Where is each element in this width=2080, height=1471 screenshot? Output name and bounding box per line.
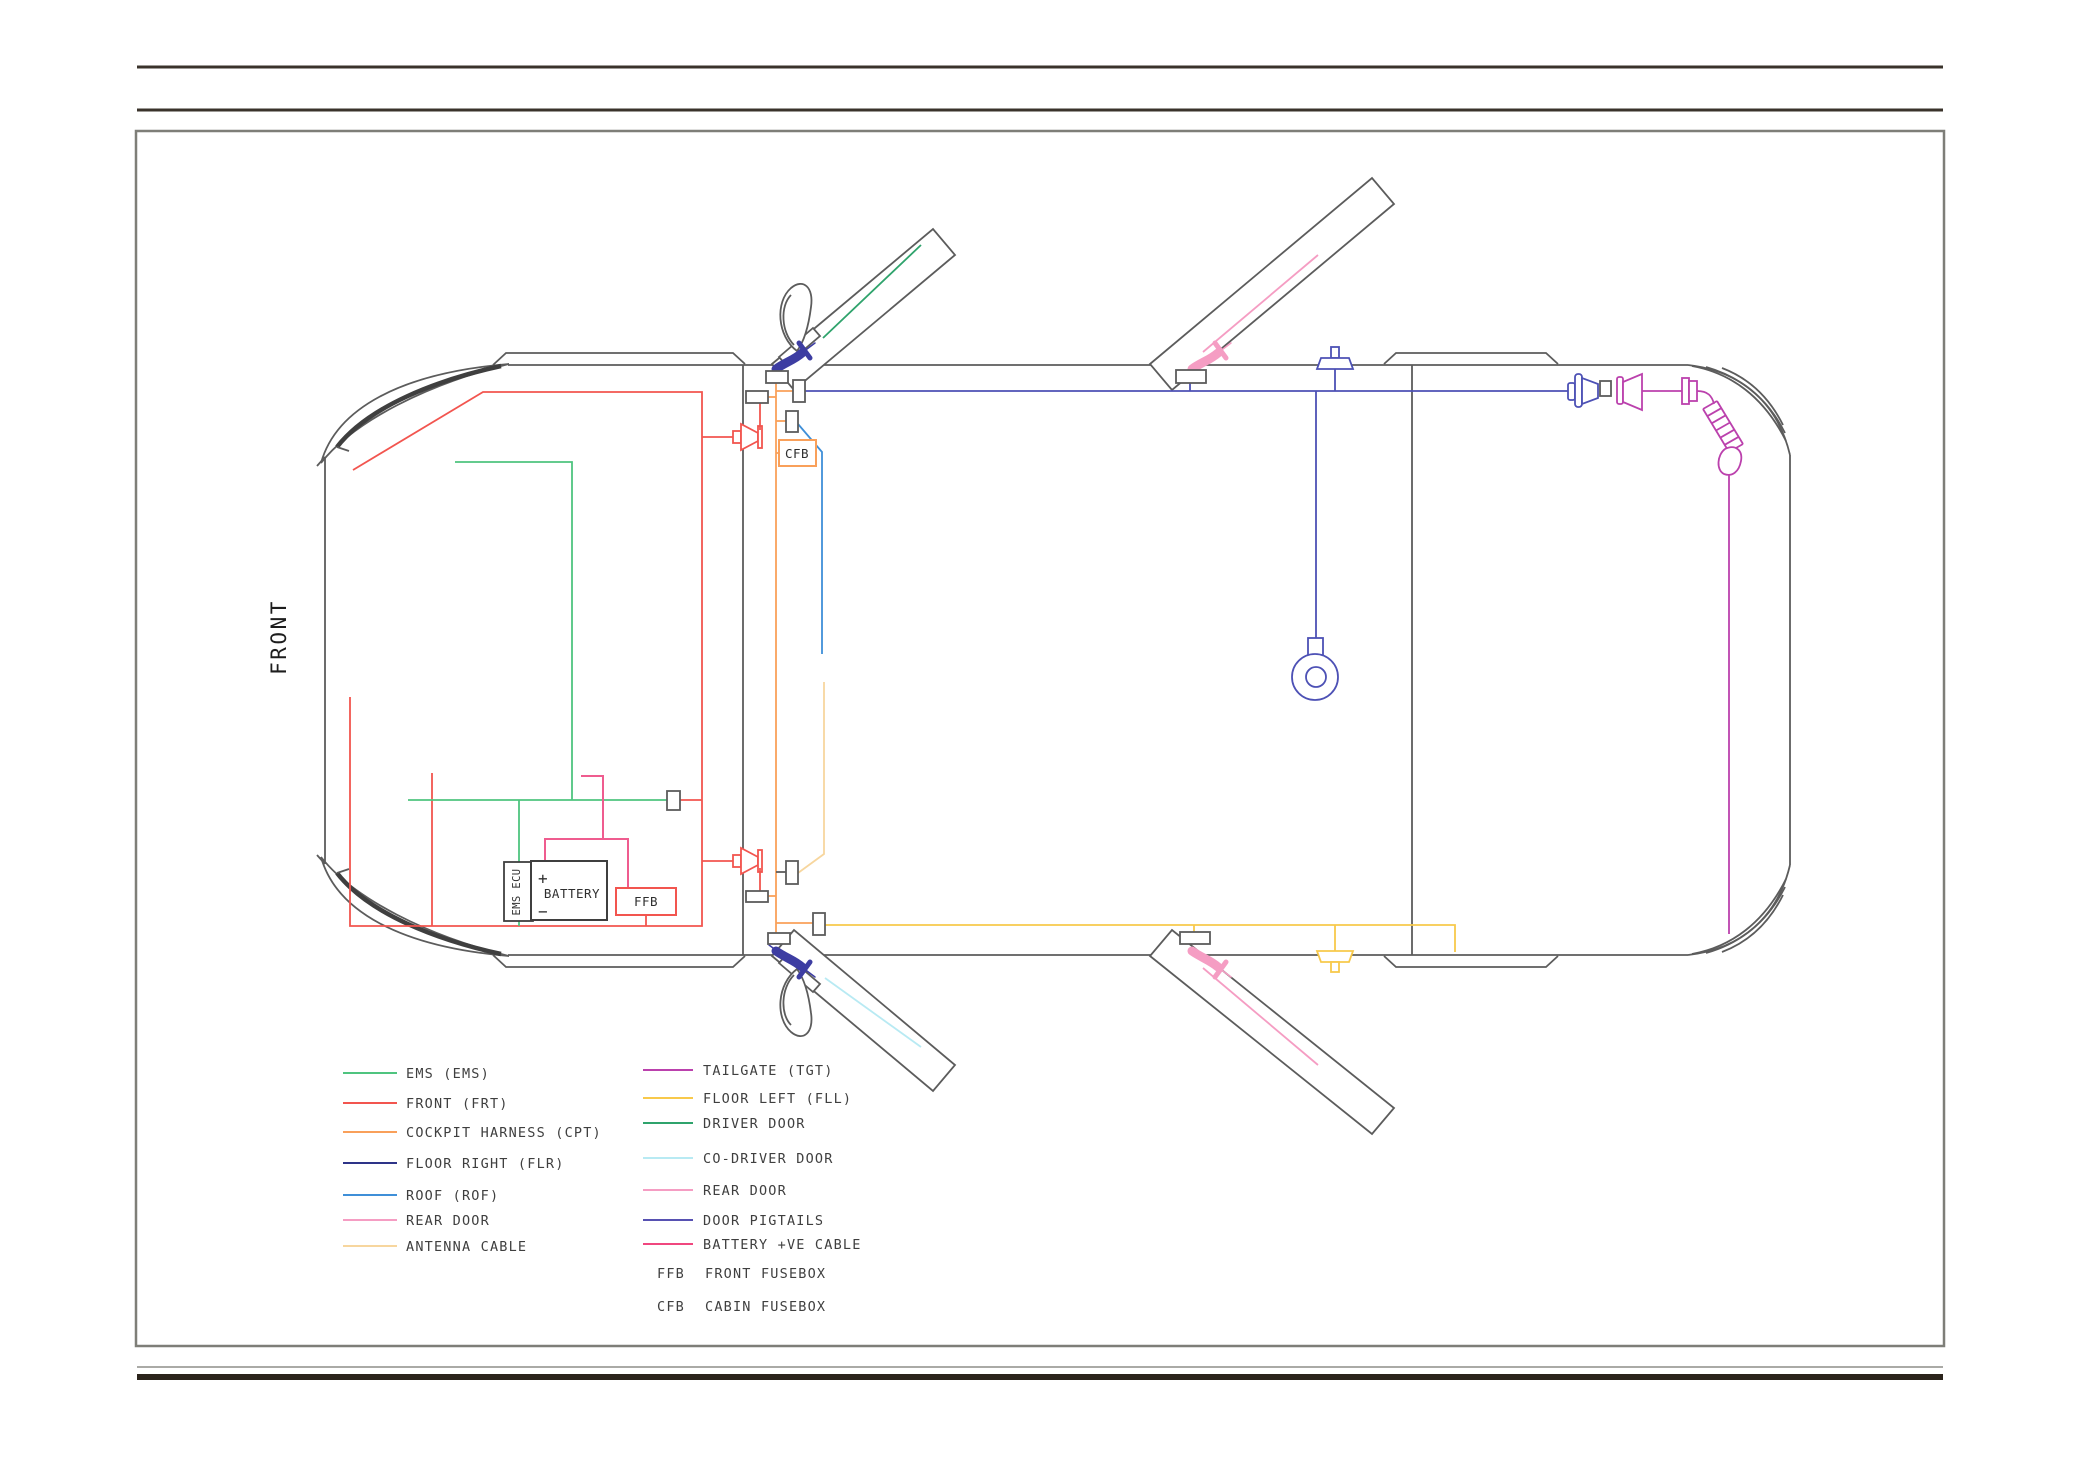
legend-row: REAR DOOR (343, 1213, 490, 1229)
front-direction-label: FRONT (267, 599, 291, 675)
connector-frt-bottom (746, 891, 768, 902)
legend-abbr-label: CABIN FUSEBOX (705, 1299, 826, 1315)
harness-floor-left (824, 925, 1455, 972)
rear-grommet-magenta (1617, 374, 1642, 410)
component-boxes: EMS ECU + BATTERY − FFB CFB (504, 440, 816, 921)
headlight-top-left (321, 364, 509, 463)
connector-rear-door-top (1176, 370, 1206, 383)
tgt-elbow (1697, 391, 1714, 404)
legend-row: CO-DRIVER DOOR (643, 1151, 834, 1167)
connector-fll (813, 913, 825, 935)
legend-abbr-row: CFB CABIN FUSEBOX (657, 1299, 826, 1315)
tailgate-connector (1682, 378, 1697, 404)
legend: EMS (EMS) FRONT (FRT) COCKPIT HARNESS (C… (343, 1063, 862, 1315)
taillight-top-right (1692, 366, 1786, 441)
legend-label: FRONT (FRT) (406, 1096, 509, 1112)
sill-bottom-rear (1384, 956, 1558, 967)
connector-door-pigtail-top (766, 371, 788, 383)
wiring-diagram-svg: FRONT (0, 0, 2080, 1471)
legend-row: FRONT (FRT) (343, 1096, 509, 1112)
spare-wheel-ring-inner (1306, 667, 1326, 687)
connector-door-pigtail-bottom (768, 933, 790, 944)
legend-label: FLOOR LEFT (FLL) (703, 1091, 852, 1107)
legend-abbr-row: FFB FRONT FUSEBOX (657, 1266, 826, 1282)
tgt-boot (1718, 447, 1741, 475)
battery-label: BATTERY (544, 886, 600, 901)
door-harness-lines (823, 245, 1318, 1065)
rear-sliding-door-bottom-outline (1150, 930, 1394, 1134)
legend-label: COCKPIT HARNESS (CPT) (406, 1125, 602, 1141)
legend-label: ANTENNA CABLE (406, 1239, 527, 1255)
legend-row: REAR DOOR (643, 1183, 787, 1199)
rear-door-top-wire (1203, 255, 1318, 352)
taillight-bottom-right (1692, 879, 1786, 954)
legend-label: BATTERY +VE CABLE (703, 1237, 862, 1253)
sill-bottom-front (493, 955, 745, 967)
rear-plug-blue (1568, 374, 1598, 407)
connector-rear-inline (1600, 381, 1611, 396)
legend-label: REAR DOOR (406, 1213, 490, 1229)
roof-sensor-top (1317, 347, 1353, 391)
page-rules (137, 67, 1943, 1377)
rear-door-bottom-wire (1203, 968, 1318, 1065)
harness-antenna (798, 682, 824, 873)
frt-main-loop (350, 392, 702, 926)
legend-row: COCKPIT HARNESS (CPT) (343, 1125, 602, 1141)
legend-label: EMS (EMS) (406, 1066, 490, 1082)
door-pigtails (769, 343, 1231, 977)
vehicle-outline (317, 178, 1790, 1134)
ems-top-branch (455, 462, 572, 800)
legend-abbr: CFB (657, 1299, 685, 1315)
legend-label: FLOOR RIGHT (FLR) (406, 1156, 565, 1172)
legend-row: BATTERY +VE CABLE (643, 1237, 862, 1253)
connector-frt-top (746, 391, 768, 403)
legend-label: DRIVER DOOR (703, 1116, 806, 1132)
firewall-grommet-bottom (733, 848, 762, 874)
legend-row: ANTENNA CABLE (343, 1239, 527, 1255)
ffb-box-label: FFB (634, 894, 658, 909)
tgt-corrugated-tube (1703, 401, 1743, 452)
connector-antenna (786, 861, 798, 884)
sill-top-front (493, 353, 745, 365)
sill-top-rear (1384, 353, 1558, 364)
legend-label: DOOR PIGTAILS (703, 1213, 824, 1229)
cfb-box-label: CFB (785, 446, 809, 461)
harness-floor-right (804, 347, 1598, 700)
legend-label: ROOF (ROF) (406, 1188, 499, 1204)
rear-sliding-door-top-outline (1150, 178, 1394, 390)
legend-label: CO-DRIVER DOOR (703, 1151, 834, 1167)
battery-minus-sign: − (538, 902, 548, 921)
legend-row: DRIVER DOOR (643, 1116, 806, 1132)
connector-flr (793, 380, 805, 402)
legend-row: FLOOR RIGHT (FLR) (343, 1156, 565, 1172)
connector-rear-door-bottom (1180, 932, 1210, 944)
legend-label: REAR DOOR (703, 1183, 787, 1199)
legend-row: EMS (EMS) (343, 1066, 490, 1082)
ems-ecu-label: EMS ECU (511, 868, 523, 915)
antenna-line (798, 682, 824, 873)
legend-row: DOOR PIGTAILS (643, 1213, 824, 1229)
fll-main-line (824, 925, 1455, 952)
legend-abbr: FFB (657, 1266, 685, 1282)
legend-label: TAILGATE (TGT) (703, 1063, 834, 1079)
harness-front (350, 392, 762, 926)
connector-rof (786, 411, 798, 432)
legend-row: FLOOR LEFT (FLL) (643, 1091, 852, 1107)
roof-sensor-bottom (1317, 951, 1353, 972)
connector-ems-frt (667, 791, 680, 810)
legend-row: TAILGATE (TGT) (643, 1063, 834, 1079)
harness-tailgate (1617, 374, 1743, 934)
firewall-grommet-top (733, 424, 762, 450)
legend-abbr-label: FRONT FUSEBOX (705, 1266, 826, 1282)
spare-wheel-connector (1292, 638, 1338, 700)
legend-row: ROOF (ROF) (343, 1188, 499, 1204)
